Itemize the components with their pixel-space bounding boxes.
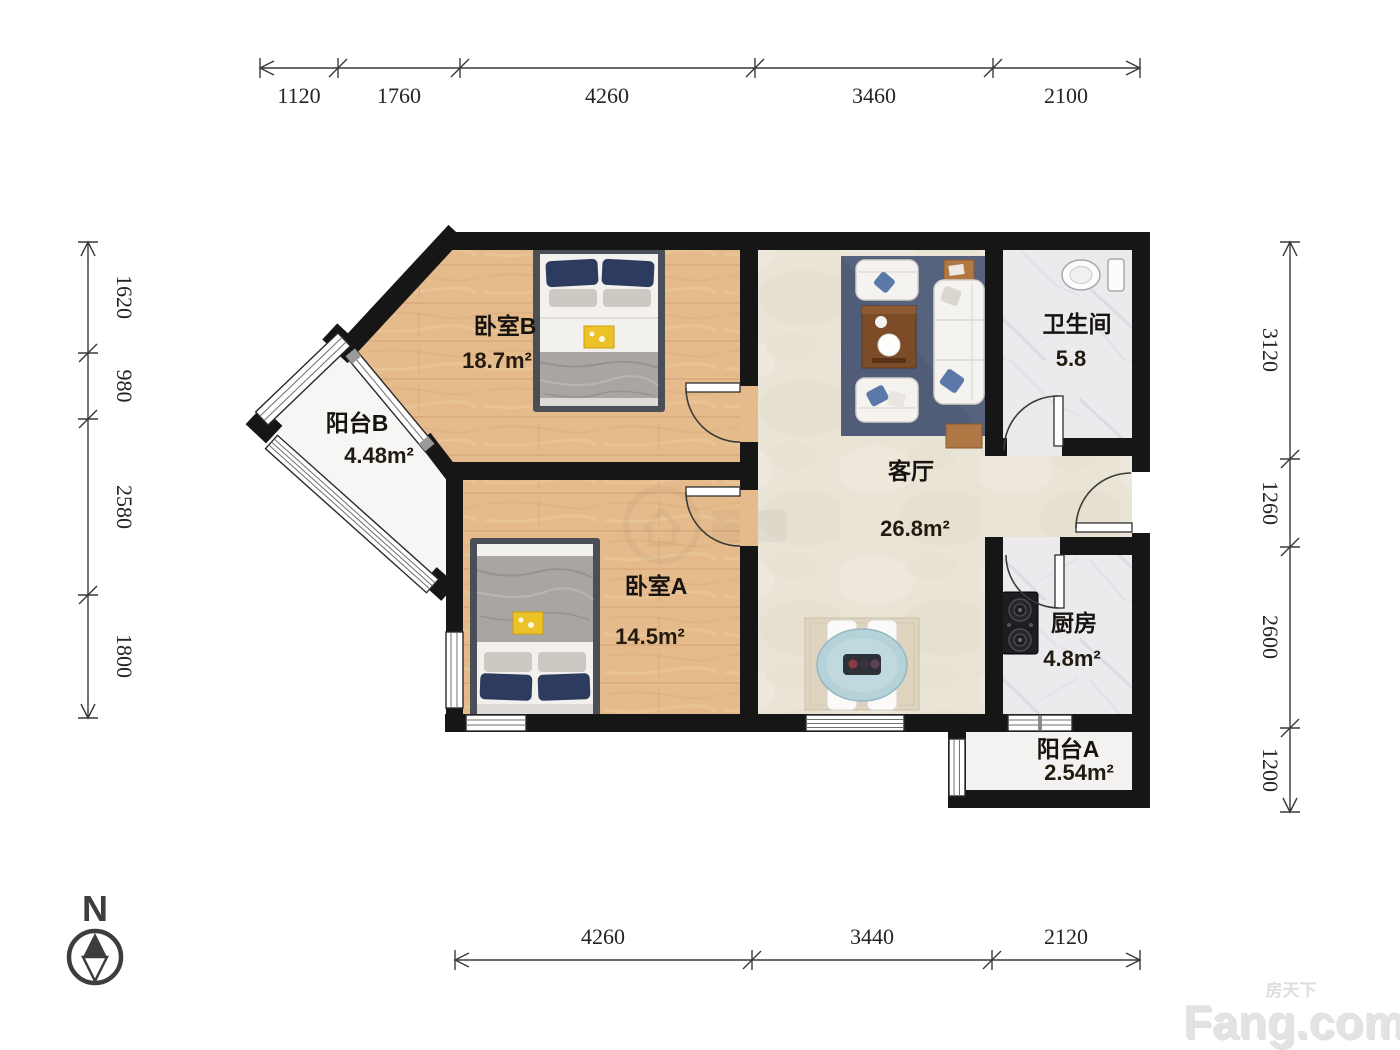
room-label-bedroom-a: 卧室A [625, 573, 688, 599]
room-label-living-room: 客厅 [888, 458, 934, 484]
window [1008, 715, 1072, 731]
room-label-balcony-a: 阳台A [1037, 736, 1100, 762]
dim-bottom-0: 4260 [581, 924, 625, 949]
dim-bottom-1: 3440 [850, 924, 894, 949]
room-area-bathroom: 5.8 [1056, 346, 1087, 371]
bed-icon [533, 248, 665, 412]
dim-right-0: 3120 [1258, 328, 1283, 372]
floorplan-page: 卧室B 18.7m² 阳台B 4.48m² 卧室A 14.5m² 客厅 26.8… [0, 0, 1400, 1050]
room-area-balcony-b: 4.48m² [344, 443, 414, 468]
dim-left-3: 1800 [112, 634, 137, 678]
room-label-bathroom: 卫生间 [1043, 311, 1112, 337]
dimension-chain-top: 1120 1760 4260 3460 2100 [260, 58, 1140, 108]
sofa-icon [841, 256, 985, 448]
dining-table-icon [805, 618, 919, 710]
toilet-icon [1062, 259, 1124, 291]
room-label-bedroom-b: 卧室B [474, 313, 537, 339]
bed-icon [470, 538, 600, 722]
window [466, 715, 526, 731]
dim-top-1: 1760 [377, 83, 421, 108]
window [949, 739, 965, 796]
dim-right-1: 1260 [1258, 481, 1283, 525]
window [806, 715, 904, 731]
window [446, 632, 463, 708]
room-area-balcony-a: 2.54m² [1044, 760, 1114, 785]
room-label-kitchen: 厨房 [1051, 610, 1097, 636]
dim-top-4: 2100 [1044, 83, 1088, 108]
room-area-bedroom-a: 14.5m² [615, 624, 685, 649]
dim-top-2: 4260 [585, 83, 629, 108]
north-compass-icon: N [69, 888, 121, 983]
dim-right-3: 1200 [1258, 748, 1283, 792]
dimension-chain-bottom: 4260 3440 2120 [455, 924, 1140, 970]
dim-bottom-2: 2120 [1044, 924, 1088, 949]
room-area-living-room: 26.8m² [880, 516, 950, 541]
room-label-balcony-b: 阳台B [326, 410, 389, 436]
dimension-chain-left: 1620 980 2580 1800 [78, 242, 137, 718]
dim-top-0: 1120 [277, 83, 320, 108]
dim-top-3: 3460 [852, 83, 896, 108]
fang-logo-cjk: 房天下 [1266, 980, 1317, 1000]
room-area-bedroom-b: 18.7m² [462, 348, 532, 373]
fang-logo-text: Fang.com [1183, 995, 1400, 1048]
dim-right-2: 2600 [1258, 615, 1283, 659]
dim-left-1: 980 [112, 370, 137, 403]
fang-logo: Fang.com Fang.com 房天下 [1183, 980, 1400, 1050]
dim-left-0: 1620 [112, 275, 137, 319]
dimension-chain-right: 3120 1260 2600 1200 [1258, 242, 1300, 812]
floorplan-svg: 卧室B 18.7m² 阳台B 4.48m² 卧室A 14.5m² 客厅 26.8… [0, 0, 1400, 1050]
room-area-kitchen: 4.8m² [1043, 646, 1100, 671]
dim-left-2: 2580 [112, 485, 137, 529]
north-label: N [82, 888, 108, 929]
